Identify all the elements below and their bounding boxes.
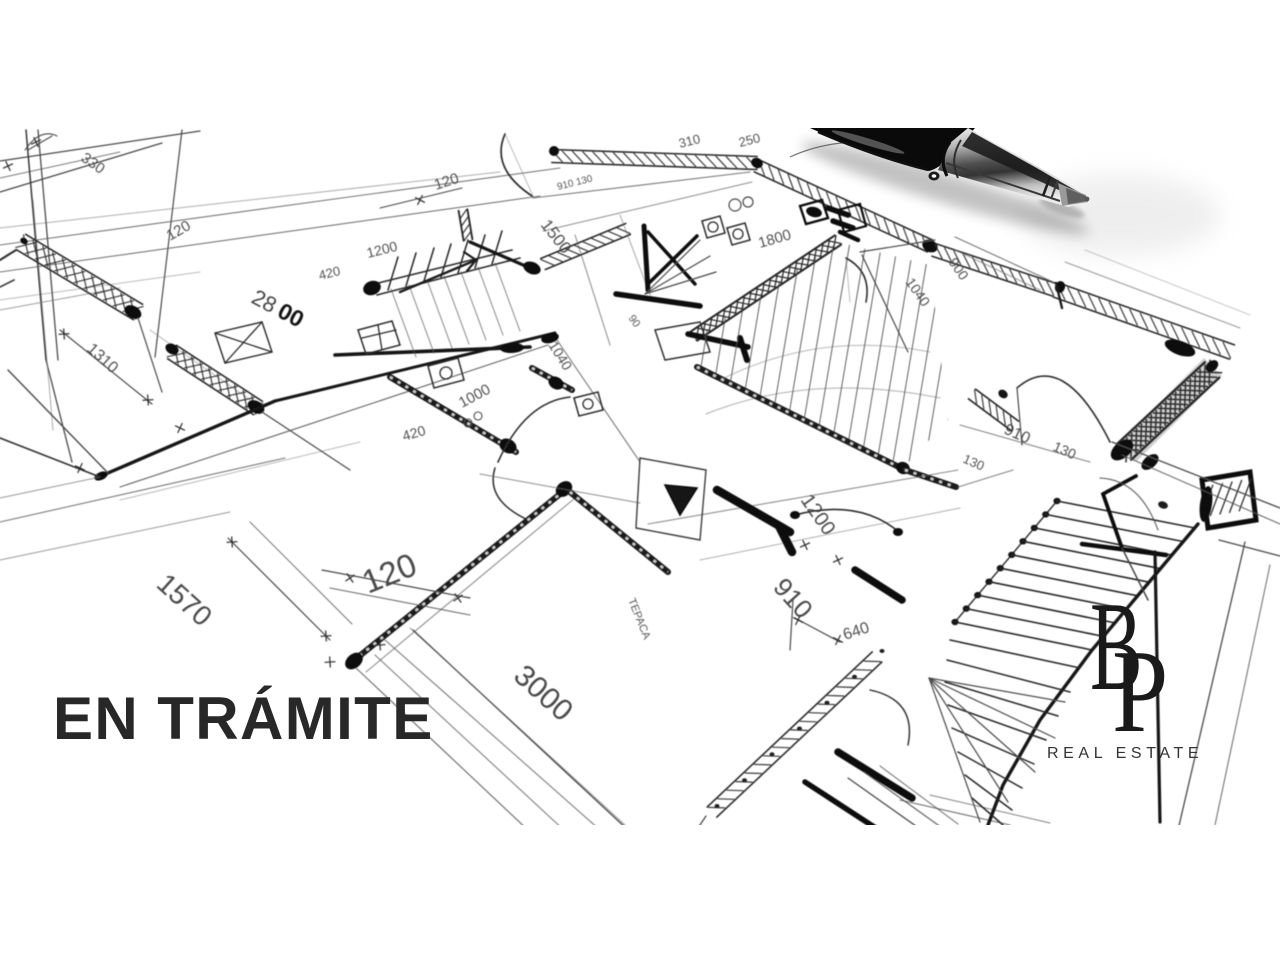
svg-text:640: 640 <box>841 619 872 643</box>
svg-text:3000: 3000 <box>507 659 579 728</box>
svg-text:120: 120 <box>432 170 461 194</box>
svg-text:1800: 1800 <box>756 226 793 252</box>
svg-text:910: 910 <box>1001 421 1032 447</box>
svg-text:1500: 1500 <box>537 216 575 258</box>
svg-text:1310: 1310 <box>83 340 121 377</box>
svg-text:130: 130 <box>961 451 987 474</box>
svg-text:420: 420 <box>317 263 342 283</box>
svg-text:310: 310 <box>677 131 702 151</box>
svg-text:250: 250 <box>737 130 762 150</box>
svg-text:330: 330 <box>78 149 108 177</box>
svg-text:1200: 1200 <box>365 238 399 261</box>
svg-text:TEPACA: TEPACA <box>625 597 653 642</box>
svg-text:910 130: 910 130 <box>556 173 594 193</box>
svg-text:28: 28 <box>248 284 281 318</box>
svg-text:130: 130 <box>1051 438 1079 462</box>
svg-text:420: 420 <box>400 422 427 444</box>
svg-text:1040: 1040 <box>545 338 575 373</box>
svg-text:1200: 1200 <box>796 490 840 539</box>
svg-text:120: 120 <box>357 546 422 601</box>
svg-text:1570: 1570 <box>151 567 218 632</box>
svg-text:1000: 1000 <box>456 381 493 412</box>
svg-text:120: 120 <box>164 217 194 244</box>
svg-text:00: 00 <box>274 297 309 332</box>
svg-text:910: 910 <box>768 572 819 624</box>
svg-text:90: 90 <box>626 313 643 330</box>
